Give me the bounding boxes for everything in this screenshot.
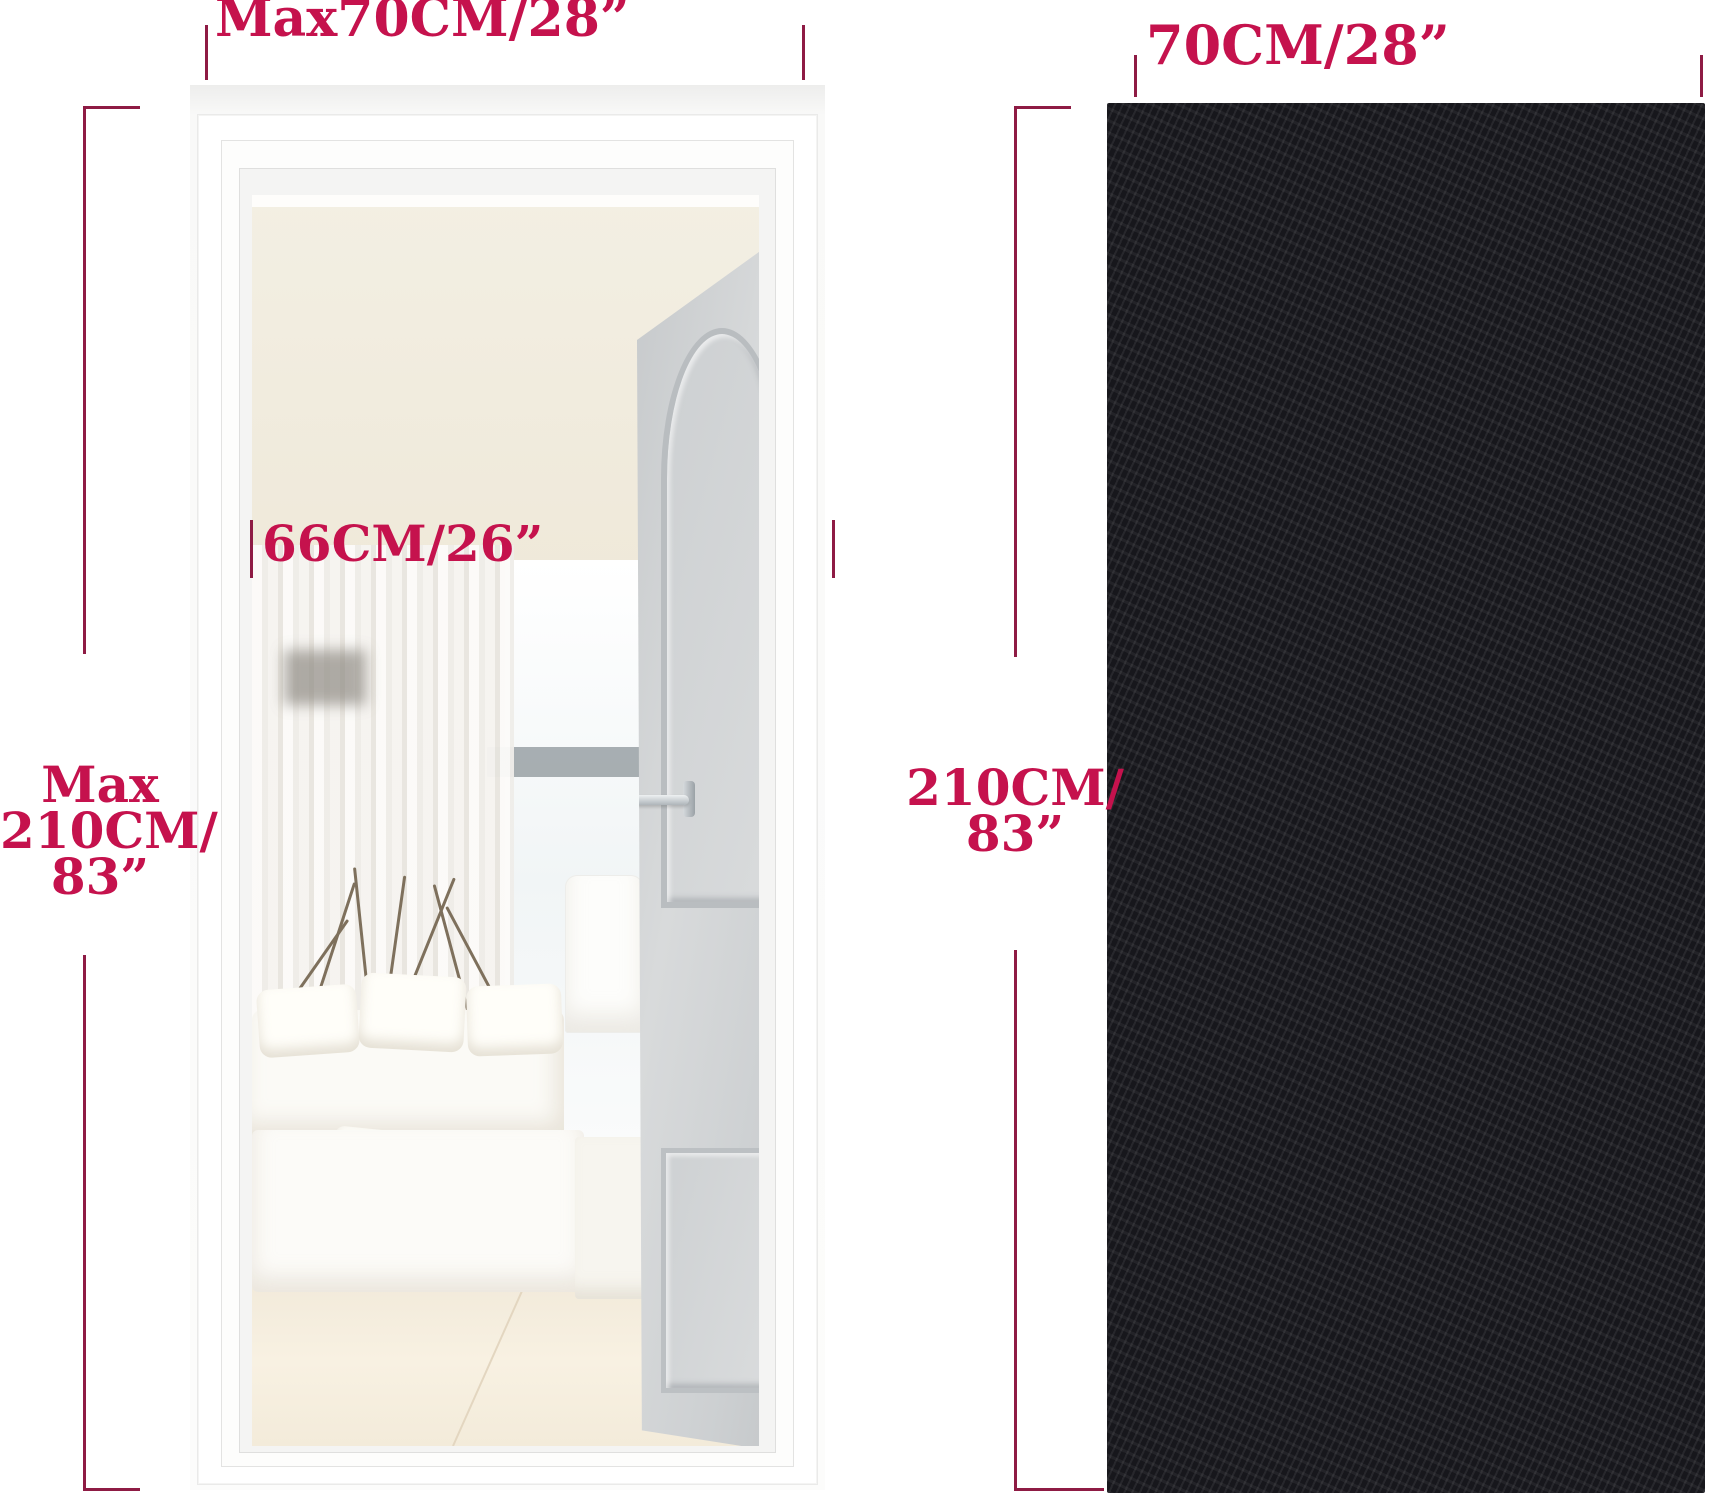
curtain-shadow [284,650,366,705]
door-arched-panel [661,328,759,908]
dimension-end-tick [250,520,253,578]
product-dimension-image: Max70CM/28” 70CM/28” 66CM/26” Max 210CM/… [0,0,1712,1500]
max-width-label: Max70CM/28” [215,0,630,45]
max-height-label-line3: 83” [0,854,200,900]
dimension-end-tick [83,106,140,109]
screen-height-label-line2: 83” [905,811,1125,857]
left-top-width-dimension: Max70CM/28” [205,0,805,86]
doorway-photo [190,85,825,1490]
opening-width-dimension: 66CM/26” [250,508,835,578]
dimension-end-tick [1700,55,1703,97]
sofa-cushion [358,972,467,1052]
sofa-cushion [466,983,563,1056]
max-height-label: Max 210CM/ 83” [0,762,200,900]
dimension-end-tick [205,25,208,80]
opening-width-label: 66CM/26” [262,519,543,569]
dimension-line-segment [83,106,86,654]
mesh-area [1129,129,1683,1463]
door-opening [252,195,759,1446]
dimension-end-tick [83,1488,140,1491]
magnetic-screen-door [1107,103,1705,1493]
screen-width-label: 70CM/28” [1146,18,1450,72]
dimension-end-tick [802,25,805,80]
dimension-end-tick [1014,1488,1104,1491]
sofa-cushion [256,984,360,1059]
interior-ceiling [252,195,759,207]
dimension-line-segment [1014,950,1017,1490]
sofa-seat [252,1130,584,1292]
right-top-width-dimension: 70CM/28” [1134,28,1703,100]
door-lower-panel [661,1148,759,1393]
dimension-end-tick [832,520,835,578]
dining-chair [565,875,643,1033]
dimension-line-segment [83,955,86,1491]
open-door [637,223,759,1446]
dimension-line-segment [1014,106,1017,657]
dimension-end-tick [1014,106,1071,109]
dimension-end-tick [1134,55,1137,97]
screen-height-label: 210CM/ 83” [905,765,1125,857]
